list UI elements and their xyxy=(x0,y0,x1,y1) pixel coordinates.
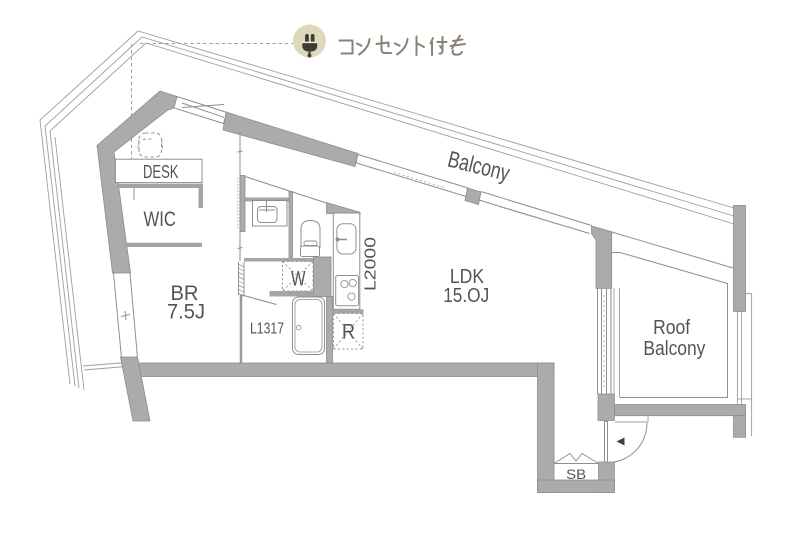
svg-text:DESK: DESK xyxy=(143,162,179,182)
svg-text:WIC: WIC xyxy=(144,207,177,231)
svg-text:L2000: L2000 xyxy=(363,237,380,291)
svg-text:Balcony: Balcony xyxy=(643,337,706,360)
svg-text:L1317: L1317 xyxy=(250,321,284,338)
svg-text:R: R xyxy=(342,321,355,344)
svg-text:15.OJ: 15.OJ xyxy=(443,285,489,307)
svg-text:W: W xyxy=(291,268,306,291)
svg-text:SB: SB xyxy=(566,466,586,482)
svg-text:7.5J: 7.5J xyxy=(167,301,205,324)
svg-text:Roof: Roof xyxy=(653,317,690,339)
